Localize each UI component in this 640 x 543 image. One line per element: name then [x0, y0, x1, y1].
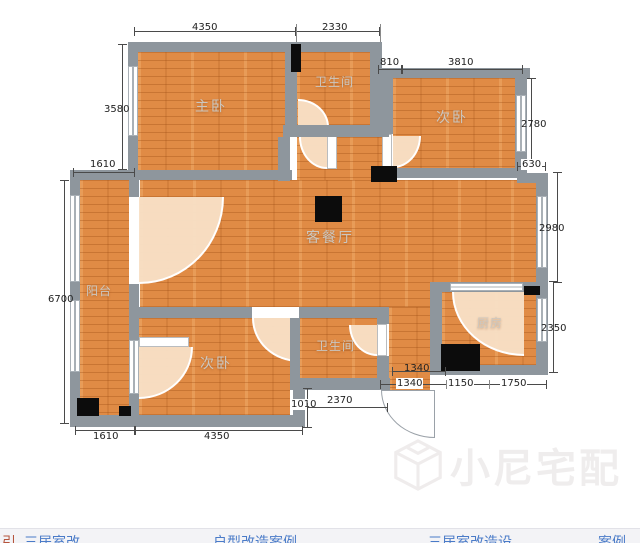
window-balcony-lower: [70, 300, 80, 372]
dimline-hall-width: [307, 407, 388, 408]
dim-top-bedroom: 3810: [448, 57, 473, 68]
door-leaf-bedroom-bottom: [139, 337, 189, 347]
window-kitchen-right: [537, 298, 547, 342]
door-leaf-master: [327, 136, 337, 169]
watermark: 小尼宅配: [390, 436, 622, 494]
door-leaf-bathroom-bottom: [377, 324, 387, 356]
floor-living-lower: [140, 282, 430, 307]
wall-living-bottom-left: [129, 307, 252, 318]
room-label-living: 客餐厅: [306, 231, 354, 246]
room-label-balcony: 阳台: [86, 284, 112, 299]
room-label-master: 主卧: [195, 100, 227, 115]
dim-top-bath: 2330: [322, 22, 347, 33]
room-label-bedroom-top: 次卧: [436, 111, 468, 126]
fixture-bedroom-top-corner: [371, 166, 397, 182]
fixture-balcony-corner-small: [119, 406, 131, 416]
door-arc-entry: [381, 390, 435, 438]
dim-right-bedroom: 2780: [521, 119, 546, 130]
wall-outer-bottom: [70, 415, 305, 427]
fixture-bath-top-column: [291, 44, 301, 72]
dim-kitchen-bottom-a: 1150: [447, 378, 474, 389]
dim-bottom-bedroom: 4350: [203, 431, 230, 442]
room-label-bath-top: 卫生间: [315, 75, 354, 90]
footer-strip: [0, 528, 640, 543]
window-kitchen-top: [450, 283, 523, 291]
window-balcony-upper: [70, 195, 80, 282]
dim-bottom-balcony: 1610: [92, 431, 119, 442]
fixture-kitchen-appliance: [524, 286, 540, 295]
window-master-left: [128, 66, 138, 136]
footer-link-fragment[interactable]: 案例: [598, 532, 626, 543]
footer-link-fragment[interactable]: 户型改造案例: [213, 532, 297, 543]
wall-balcony-divider-a: [129, 180, 139, 197]
footer-link-fragment[interactable]: 三居室改造设: [428, 532, 512, 543]
dim-hall-height: 1010: [290, 399, 317, 410]
footer-fragment[interactable]: 引: [2, 532, 16, 543]
wall-bedroom-top-bottom: [389, 168, 527, 178]
fixture-living-cabinet: [315, 196, 342, 222]
wall-bathroom-bottom-right-a: [377, 318, 389, 324]
watermark-text: 小尼宅配: [450, 436, 622, 494]
dim-left-master: 3580: [104, 104, 129, 115]
ext-line: [296, 24, 297, 42]
footer-link-fragment[interactable]: 三居室改: [24, 532, 80, 543]
ext-line: [380, 24, 381, 42]
fixture-balcony-corner-large: [77, 398, 99, 416]
dim-left-balcony: 6700: [48, 294, 73, 305]
door-leaf-bedroom-top: [382, 134, 392, 168]
ext-tick: [489, 380, 490, 389]
dim-balcony-top: 1610: [90, 159, 115, 170]
dim-entry-a: 1340: [404, 363, 429, 374]
floorplan-screenshot: 主卧 卫生间 次卧 客餐厅 阳台 次卧 卫生间 厨房 4350 2330 810…: [0, 0, 640, 543]
dimline-top-bedroom: [402, 69, 523, 70]
room-label-bath-bottom: 卫生间: [316, 339, 355, 354]
dimline-niche: [378, 69, 402, 70]
dim-entry-b: 1340: [396, 378, 423, 389]
dim-step-right: 630: [521, 159, 542, 170]
room-label-kitchen: 厨房: [477, 316, 503, 331]
dim-niche: 810: [380, 57, 399, 68]
fixture-kitchen-counter: [441, 344, 480, 371]
dim-kitchen-bottom-b: 1750: [500, 378, 527, 389]
window-bedroom-bottom: [129, 340, 139, 394]
wall-top-master: [128, 42, 382, 52]
wall-bath-top-bottom: [283, 125, 389, 137]
wall-living-bottom-right: [299, 307, 389, 318]
dim-top-master: 4350: [192, 22, 217, 33]
dim-right-living: 2980: [539, 223, 564, 234]
room-label-bedroom-bottom: 次卧: [200, 357, 232, 372]
dimline-balcony-top: [73, 172, 135, 173]
dim-right-kitchen: 2350: [541, 323, 566, 334]
wall-balcony-divider-c: [129, 318, 139, 340]
cube-logo-icon: [390, 437, 446, 493]
dim-hall-width: 2370: [327, 395, 352, 406]
